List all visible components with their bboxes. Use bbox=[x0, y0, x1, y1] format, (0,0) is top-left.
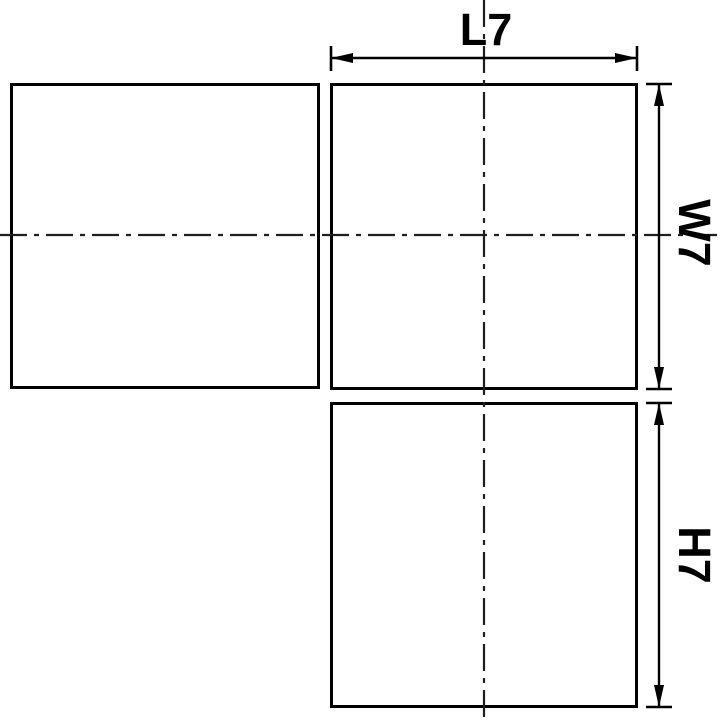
dimension-label-width: W7 bbox=[669, 199, 720, 267]
orthographic-views-drawing: L7 W7 H7 bbox=[0, 0, 720, 720]
dimension-label-length: L7 bbox=[460, 4, 513, 55]
technical-drawing-canvas: L7 W7 H7 bbox=[0, 0, 720, 720]
dimension-label-height: H7 bbox=[669, 526, 720, 584]
drawing-background bbox=[0, 0, 720, 720]
